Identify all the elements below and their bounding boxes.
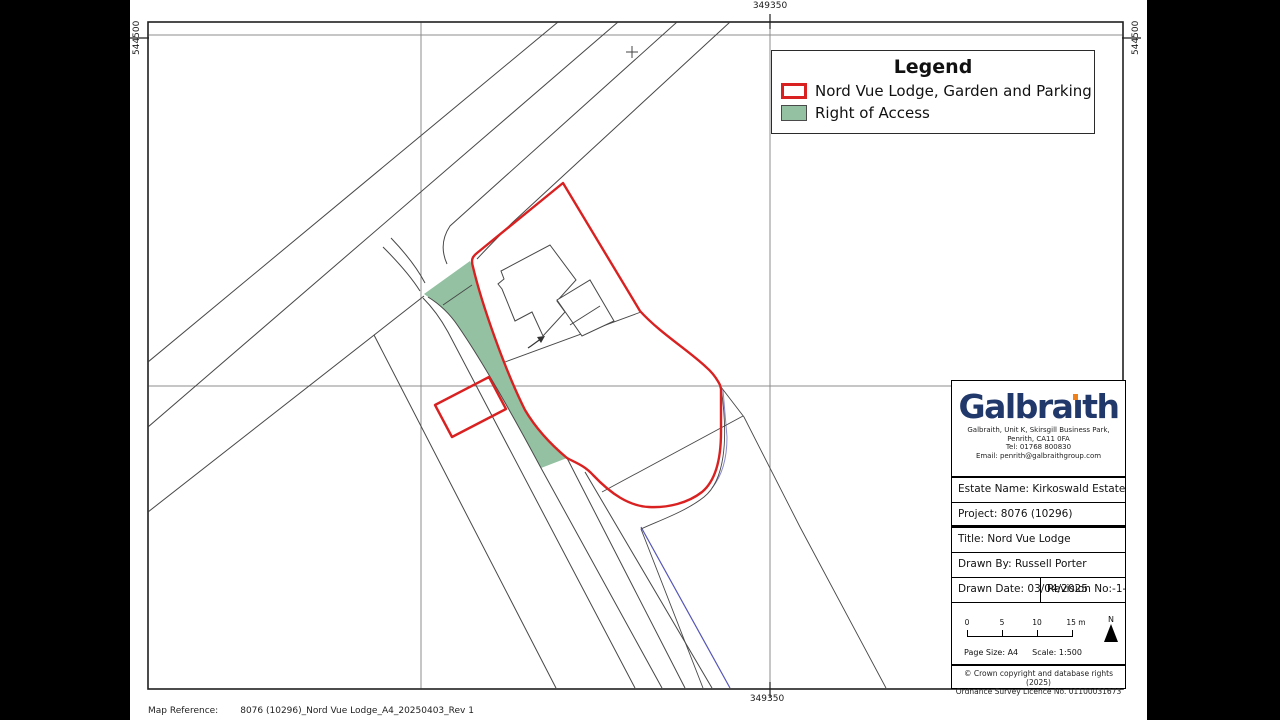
main-red-boundary — [472, 183, 721, 507]
logo-orange-dot-icon — [1073, 394, 1078, 400]
green-fill-swatch — [781, 105, 807, 121]
drawn-date-cell: Drawn Date: 03/04/2025 — [952, 578, 1041, 602]
scale-tick-label: 10 — [1032, 618, 1042, 627]
address-line: Tel: 01768 800830 — [952, 443, 1125, 452]
office-address: Galbraith, Unit K, Skirsgill Business Pa… — [952, 426, 1125, 460]
access-arrow-icon — [528, 336, 545, 348]
easting-label-top: 349350 — [740, 1, 800, 11]
galbraith-logo-box: Galbraıth Galbraith, Unit K, Skirsgill B… — [951, 380, 1126, 477]
revision-value: -1- — [1112, 578, 1126, 602]
revision-label: Revision No: — [1047, 578, 1112, 602]
north-arrow-icon — [1104, 624, 1118, 642]
scale-bar-tick — [1037, 630, 1038, 637]
legend-item-label: Nord Vue Lodge, Garden and Parking — [815, 82, 1092, 100]
scale-label: Scale: 1:500 — [1032, 648, 1082, 657]
grid-cross-mark — [626, 46, 638, 58]
logo-text: th — [1082, 387, 1118, 426]
lodge-building — [498, 245, 576, 336]
address-line: Galbraith, Unit K, Skirsgill Business Pa… — [952, 426, 1125, 435]
address-line: Email: penrith@galbraithgroup.com — [952, 452, 1125, 461]
screenshot-root: { "grid": { "easting_top": "349350", "ea… — [0, 0, 1280, 720]
logo-i: ı — [1072, 390, 1082, 423]
map-reference-value: 8076 (10296)_Nord Vue Lodge_A4_20250403_… — [240, 706, 474, 716]
legend-title: Legend — [772, 56, 1094, 78]
north-label: N — [1108, 615, 1114, 624]
track-lines — [374, 297, 712, 688]
scale-bar-tick — [1002, 630, 1003, 637]
road-lines — [148, 22, 730, 512]
revision-cell: Revision No: -1- — [1041, 578, 1126, 602]
legend-item-nord-vue: Nord Vue Lodge, Garden and Parking — [781, 82, 1094, 100]
scale-bar-tick — [1072, 630, 1073, 637]
page-size-label: Page Size: A4 — [964, 648, 1018, 657]
copyright-line: Ordnance Survey Licence No. 01100031673 — [952, 687, 1125, 696]
scale-tick-label: 5 — [1000, 618, 1005, 627]
scale-bar — [967, 636, 1073, 637]
project-row: Project: 8076 (10296) — [951, 502, 1126, 528]
scale-bar-box: 0 5 10 15 m Page Size: A4Scale: 1:500 N — [951, 602, 1126, 665]
legend-item-right-of-access: Right of Access — [781, 104, 1094, 122]
copyright-box: © Crown copyright and database rights (2… — [951, 665, 1126, 689]
copyright-line: © Crown copyright and database rights (2… — [952, 669, 1125, 687]
galbraith-logo: Galbraıth — [959, 390, 1119, 423]
scale-tick-label: 15 m — [1066, 618, 1085, 627]
red-outline-swatch — [781, 83, 807, 99]
map-reference: Map Reference: 8076 (10296)_Nord Vue Lod… — [148, 706, 474, 716]
title-row: Title: Nord Vue Lodge — [951, 527, 1126, 553]
northing-label-left: 544500 — [132, 21, 142, 55]
date-revision-row: Drawn Date: 03/04/2025 Revision No: -1- — [951, 577, 1126, 603]
page-size-scale: Page Size: A4Scale: 1:500 — [964, 648, 1096, 657]
field-boundaries — [505, 312, 886, 688]
map-reference-label: Map Reference: — [148, 706, 218, 716]
scale-bar-tick — [967, 630, 968, 637]
legend-box: Legend Nord Vue Lodge, Garden and Parkin… — [771, 50, 1095, 134]
drawn-by-row: Drawn By: Russell Porter — [951, 552, 1126, 578]
logo-text: Galbra — [959, 387, 1073, 426]
buildings — [498, 245, 614, 336]
easting-label-bottom: 349350 — [737, 694, 797, 704]
estate-name-row: Estate Name: Kirkoswald Estate — [951, 477, 1126, 503]
scale-tick-label: 0 — [965, 618, 970, 627]
northing-label-right: 544500 — [1131, 21, 1141, 55]
blue-service-line — [641, 527, 730, 688]
address-line: Penrith, CA11 0FA — [952, 435, 1125, 444]
legend-item-label: Right of Access — [815, 104, 930, 122]
